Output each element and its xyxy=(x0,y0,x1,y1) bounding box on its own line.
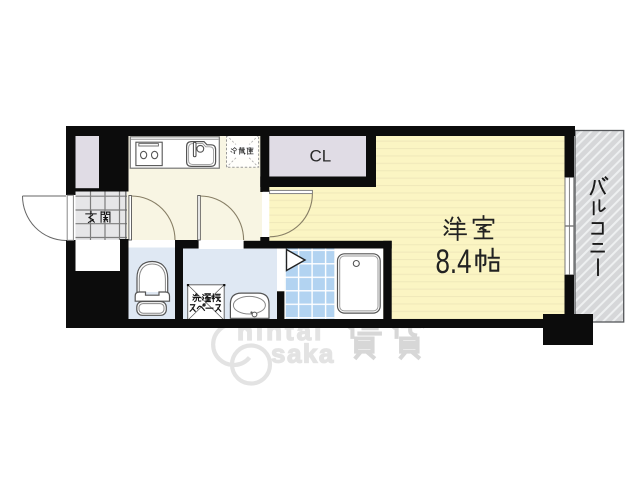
svg-text:CL: CL xyxy=(310,147,332,166)
svg-text:8.4: 8.4 xyxy=(436,243,472,281)
svg-text:saka: saka xyxy=(271,339,335,369)
